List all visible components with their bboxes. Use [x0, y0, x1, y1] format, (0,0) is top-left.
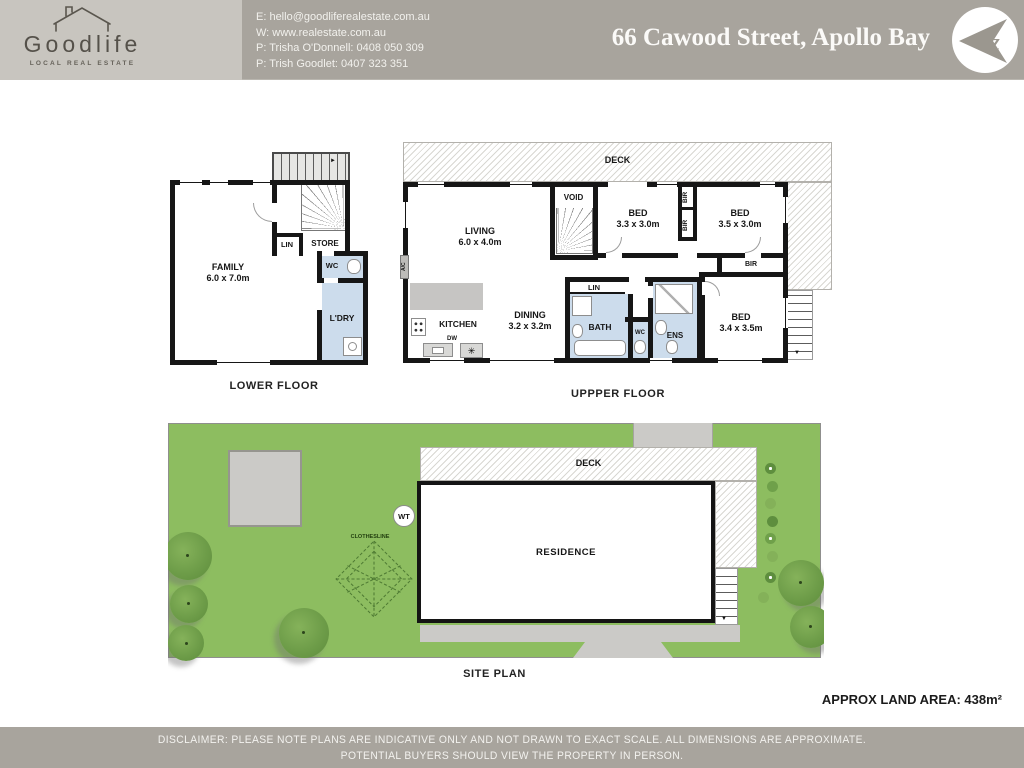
tree	[170, 585, 208, 623]
room-dims: 3.2 x 3.2m	[495, 321, 565, 332]
window	[760, 182, 775, 187]
contact-email: E: hello@goodliferealestate.com.au	[256, 10, 430, 26]
driveway	[573, 642, 673, 658]
room-label-store: STORE	[302, 238, 348, 249]
disclaimer-line-2: POTENTIAL BUYERS SHOULD VIEW THE PROPERT…	[31, 748, 994, 764]
deck-label: DECK	[403, 155, 832, 166]
deck-label: DECK	[420, 458, 757, 469]
lower-floor-title: LOWER FLOOR	[168, 380, 380, 392]
room-dims: 6.0 x 7.0m	[188, 273, 268, 284]
tree	[168, 625, 204, 661]
wall	[697, 253, 783, 258]
door-arc	[745, 237, 761, 253]
room-label-bed3: BED 3.4 x 3.5m	[705, 312, 777, 334]
brand-name: Goodlife	[10, 31, 155, 58]
disclaimer-footer: DISCLAIMER: PLEASE NOTE PLANS ARE INDICA…	[0, 727, 1024, 768]
room-label-bed2: BED 3.5 x 3.0m	[700, 208, 780, 230]
bush	[767, 516, 778, 527]
bush	[758, 592, 769, 603]
wall	[678, 237, 697, 241]
window	[210, 180, 228, 185]
room-dims: 3.5 x 3.0m	[700, 219, 780, 230]
robe-label-bir: BIR	[722, 259, 780, 270]
window	[718, 358, 762, 363]
room-label-void: VOID	[550, 192, 597, 203]
tree	[778, 560, 824, 606]
window	[253, 180, 270, 185]
door-opening	[606, 253, 622, 258]
sink-unit-icon	[423, 343, 453, 357]
patio	[420, 625, 740, 642]
door-opening	[629, 277, 645, 282]
room-dims: 3.3 x 3.0m	[598, 219, 678, 230]
room-name: LIVING	[440, 226, 520, 237]
window	[430, 358, 464, 363]
stair-down-arrow: ▼	[721, 616, 727, 622]
door-opening	[608, 182, 647, 187]
room-label-living: LIVING 6.0 x 4.0m	[440, 226, 520, 248]
property-address: 66 Cawood Street, Apollo Bay	[612, 24, 930, 52]
room-label-dining: DINING 3.2 x 3.2m	[495, 310, 565, 332]
wall	[550, 255, 598, 260]
bush	[767, 551, 778, 562]
room-label-bath: BATH	[572, 322, 628, 333]
appliance-star-icon: ✳	[460, 343, 483, 358]
site-plan-title: SITE PLAN	[168, 668, 821, 680]
wall	[717, 272, 783, 277]
upper-floor-title: UPPPER FLOOR	[400, 388, 836, 400]
wall	[693, 187, 697, 241]
kitchen-counter	[410, 283, 483, 310]
contact-phone-1: P: Trisha O'Donnell: 0408 050 309	[256, 41, 430, 57]
bush	[765, 463, 776, 474]
ac-label: A/C	[401, 256, 407, 278]
door-arc	[253, 203, 272, 222]
door-arc	[606, 237, 622, 253]
stair-direction-arrow: ►	[330, 158, 336, 164]
window	[403, 202, 408, 228]
room-label-lin: LIN	[272, 239, 302, 250]
room-label-wc: WC	[317, 260, 347, 271]
room-name: BED	[700, 208, 780, 219]
robe-label-bir: BIR	[682, 213, 689, 237]
window	[217, 360, 270, 365]
compass-letter: z	[988, 28, 1000, 59]
water-tank: WT	[393, 505, 415, 527]
wall	[170, 180, 175, 365]
room-name: BED	[598, 208, 678, 219]
path	[633, 423, 713, 448]
wall	[697, 282, 702, 358]
window	[783, 197, 788, 223]
room-dims: 6.0 x 4.0m	[440, 237, 520, 248]
stairs	[556, 208, 593, 254]
brand-panel: Goodlife LOCAL REAL ESTATE	[0, 0, 242, 80]
wall	[678, 207, 697, 210]
clothesline-icon	[333, 538, 415, 620]
wall	[272, 185, 277, 203]
cooktop-icon	[411, 318, 426, 336]
room-label-family: FAMILY 6.0 x 7.0m	[188, 262, 268, 284]
stairs	[301, 185, 345, 231]
robe-label-bir: BIR	[682, 189, 689, 206]
residence-outline: RESIDENCE	[417, 481, 715, 623]
header: Goodlife LOCAL REAL ESTATE E: hello@good…	[0, 0, 1024, 80]
vanity-icon	[572, 296, 592, 316]
bush	[765, 498, 776, 509]
contact-info: E: hello@goodliferealestate.com.au W: ww…	[256, 10, 430, 72]
window	[783, 298, 788, 328]
toilet-icon	[347, 259, 361, 274]
deck-area	[783, 182, 832, 290]
door-arc	[705, 281, 720, 296]
tree	[790, 606, 824, 648]
window	[180, 180, 202, 185]
window	[650, 358, 672, 363]
bush	[765, 572, 776, 583]
stair-down-arrow: ▼	[794, 350, 800, 356]
window	[418, 182, 444, 187]
room-label-laundry: L'DRY	[321, 313, 363, 324]
residence-label: RESIDENCE	[536, 547, 596, 558]
wall	[363, 251, 368, 365]
upper-floor-plan: DECK ▼ VOID BIR BIR BIR BED 3.3 x 3.0m B…	[400, 140, 836, 402]
room-label-ens: ENS	[653, 330, 697, 341]
lower-floor-plan: ► FAMILY 6.0 x 7.0m LIN STORE WC L'DRY L…	[168, 150, 380, 402]
shed	[228, 450, 302, 527]
deck-area	[715, 481, 757, 568]
window	[490, 358, 554, 363]
toilet-icon	[666, 340, 678, 354]
room-label-kitchen: KITCHEN	[428, 319, 488, 330]
stairs	[272, 152, 350, 182]
door-opening	[278, 251, 290, 256]
bush	[765, 533, 776, 544]
door-opening	[745, 253, 761, 258]
contact-phone-2: P: Trish Goodlet: 0407 323 351	[256, 57, 430, 73]
shower-icon	[655, 284, 693, 314]
compass-icon: z	[952, 7, 1018, 73]
bathtub-icon	[574, 340, 626, 356]
contact-web: W: www.realestate.com.au	[256, 26, 430, 42]
house-logo-icon	[52, 5, 112, 33]
land-area: APPROX LAND AREA: 438m²	[822, 692, 1002, 707]
window	[510, 182, 532, 187]
washing-machine-icon	[343, 337, 362, 356]
room-name: BED	[705, 312, 777, 323]
disclaimer-line-1: DISCLAIMER: PLEASE NOTE PLANS ARE INDICA…	[31, 732, 994, 748]
toilet-icon	[634, 340, 646, 354]
site-plan: ▼ DECK RESIDENCE WT CLOTHESLINE SITE PLA…	[168, 420, 824, 682]
window	[657, 182, 677, 187]
brand-tagline: LOCAL REAL ESTATE	[10, 60, 155, 67]
room-name: FAMILY	[188, 262, 268, 273]
bush	[767, 481, 778, 492]
room-label-bed1: BED 3.3 x 3.0m	[598, 208, 678, 230]
room-dims: 3.4 x 3.5m	[705, 323, 777, 334]
room-name: DINING	[495, 310, 565, 321]
tree	[279, 608, 329, 658]
